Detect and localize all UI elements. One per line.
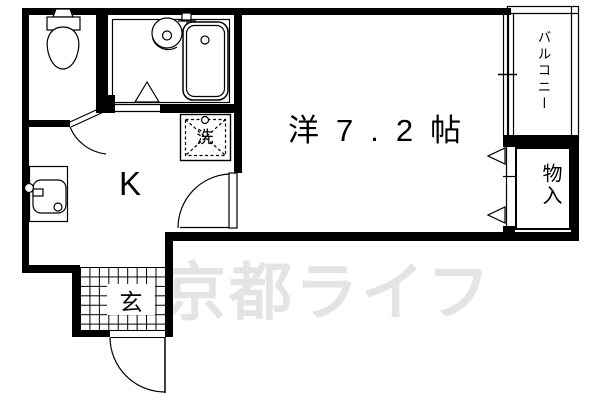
entrance-label-patch: 玄 [107, 284, 155, 315]
fixtures-layer [0, 0, 600, 400]
bath-door-triangle-icon [135, 82, 159, 102]
kitchen-sink-icon [25, 167, 68, 222]
closet-door-triangle-icon [488, 207, 505, 223]
balcony-label: バルコニー [536, 30, 550, 113]
kitchen-room-door-swing [178, 173, 237, 228]
kitchen-label: K [119, 167, 141, 200]
bath-sink-icon [152, 18, 182, 50]
laundry-label: 洗 [181, 129, 229, 146]
room-label: 洋7.2帖 [288, 115, 478, 146]
bathtub-icon [183, 22, 228, 100]
toilet-icon [47, 9, 80, 69]
storage-label: 物入 [540, 163, 560, 207]
entrance-label: 玄 [120, 283, 143, 317]
toilet-door-swing [70, 105, 108, 154]
closet-door-triangle-icon [488, 148, 505, 164]
bath-door-threshold [113, 105, 160, 112]
floorplan: 京都ライフ [0, 0, 600, 400]
entrance-door-swing [110, 337, 165, 393]
storage-door [488, 147, 515, 230]
